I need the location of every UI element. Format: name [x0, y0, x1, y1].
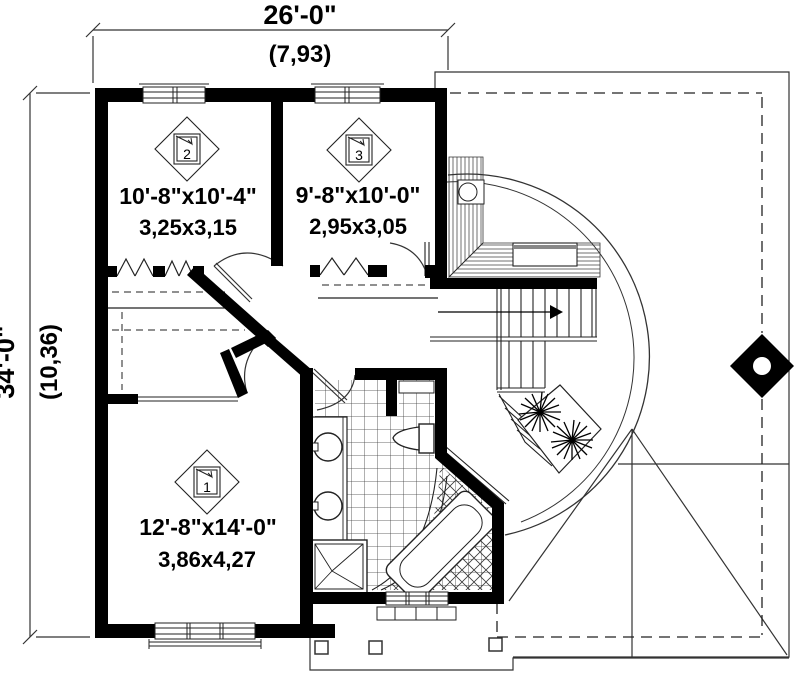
room3-size-imperial: 9'-8"x10'-0": [296, 182, 421, 208]
top-dimension-metric: (7,93): [269, 41, 332, 68]
room-marker-number: 1: [203, 479, 211, 495]
room2-size-metric: 3,25x3,15: [139, 215, 237, 240]
bifold-closet-door: [117, 259, 153, 276]
floor-plan-sheet: 26'-0" (7,93) 34'-0" (10,36) 2 10'-8"x10…: [0, 0, 800, 680]
floor-plan-drawing: 26'-0" (7,93) 34'-0" (10,36) 2 10'-8"x10…: [0, 0, 800, 680]
roof-hip-right: [632, 429, 787, 655]
left-dimension-metric: (10,36): [36, 324, 63, 400]
window: [139, 84, 209, 103]
room2-size-imperial: 10'-8"x10'-4": [119, 183, 257, 209]
door-swing-arc: [390, 243, 428, 278]
bathroom: [311, 380, 499, 604]
room-marker-number: 3: [355, 147, 363, 163]
porch-post: [315, 641, 328, 654]
window: [311, 84, 384, 103]
room1-size-metric: 3,86x4,27: [158, 547, 256, 572]
room3-size-metric: 2,95x3,05: [309, 214, 407, 239]
porch-post: [489, 638, 502, 651]
left-dimension-imperial: 34'-0": [0, 325, 20, 398]
room-marker-number: 2: [183, 146, 191, 162]
top-dimension-imperial: 26'-0": [263, 0, 336, 30]
room1-size-imperial: 12'-8"x14'-0": [139, 514, 277, 540]
stair-nosing: [430, 337, 597, 341]
stair-stringer: [497, 289, 501, 390]
plant-icon: [519, 392, 561, 432]
landing-wood-floor: [449, 157, 600, 277]
porch: [310, 637, 789, 670]
window: [149, 623, 261, 649]
window: [377, 592, 456, 620]
shower: [311, 540, 367, 593]
bifold-closet-door: [320, 258, 368, 275]
chimney: [730, 334, 794, 398]
porch-post: [369, 641, 382, 654]
vanity: [311, 417, 347, 545]
planter: [518, 385, 601, 473]
